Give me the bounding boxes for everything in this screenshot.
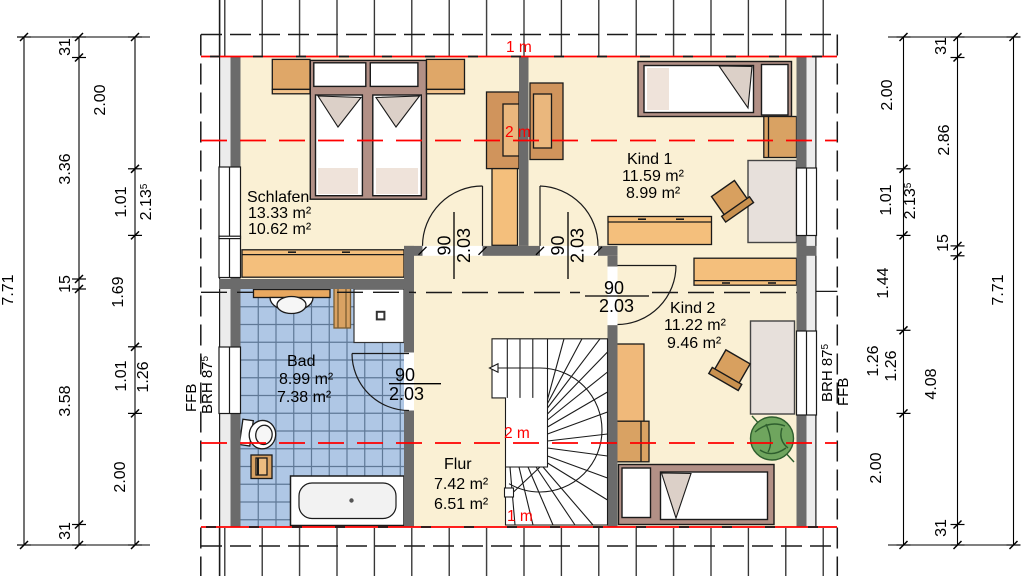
svg-text:90: 90 [435,235,455,255]
svg-text:11.59 m²: 11.59 m² [622,168,685,185]
svg-text:11.22 m²: 11.22 m² [664,317,727,334]
svg-text:7.38 m²: 7.38 m² [277,389,332,406]
svg-text:90: 90 [604,278,624,298]
svg-text:7.71: 7.71 [0,274,17,305]
svg-text:10.62 m²: 10.62 m² [248,221,312,238]
svg-text:31: 31 [933,37,950,55]
svg-text:31: 31 [933,519,950,537]
svg-text:FFB: FFB [835,378,852,406]
svg-text:1.01: 1.01 [113,360,130,391]
svg-text:1.01: 1.01 [113,186,130,217]
svg-text:2.00: 2.00 [868,452,885,483]
svg-text:1.26: 1.26 [865,345,882,376]
svg-text:2.03: 2.03 [389,384,424,404]
svg-text:1.69: 1.69 [110,276,127,307]
svg-text:1.26: 1.26 [883,350,900,381]
svg-text:90: 90 [548,235,568,255]
svg-text:15: 15 [935,234,952,252]
svg-text:BRH 875: BRH 875 [199,355,216,414]
svg-text:2.00: 2.00 [92,84,109,115]
svg-text:1 m: 1 m [506,39,532,56]
svg-text:90: 90 [395,365,415,385]
svg-text:2.03: 2.03 [599,296,634,316]
svg-text:8.99 m²: 8.99 m² [626,185,681,202]
svg-text:2.03: 2.03 [568,228,588,263]
svg-text:FFB: FFB [183,384,200,412]
svg-text:2.86: 2.86 [936,124,953,155]
svg-text:31: 31 [57,38,74,56]
svg-text:7.42 m²: 7.42 m² [434,476,489,493]
svg-text:Schlafen: Schlafen [247,189,309,206]
svg-text:2 m: 2 m [505,124,531,141]
svg-text:Bad: Bad [287,353,315,370]
svg-text:Flur: Flur [444,456,472,473]
svg-text:2.00: 2.00 [112,461,129,492]
svg-text:2.03: 2.03 [454,228,474,263]
svg-text:1.44: 1.44 [875,267,892,298]
svg-text:13.33 m²: 13.33 m² [248,205,312,222]
svg-text:BRH 875: BRH 875 [819,343,836,402]
svg-text:3.36: 3.36 [57,153,74,184]
svg-text:7.71: 7.71 [990,274,1007,305]
svg-text:1 m: 1 m [507,508,533,525]
svg-text:4.08: 4.08 [923,368,940,399]
svg-text:15: 15 [57,275,74,293]
svg-text:31: 31 [57,522,74,540]
svg-text:Kind 2: Kind 2 [670,300,715,317]
svg-text:Kind 1: Kind 1 [627,151,672,168]
svg-text:3.58: 3.58 [57,385,74,416]
svg-text:9.46 m²: 9.46 m² [667,335,722,352]
svg-text:2 m: 2 m [504,425,530,442]
svg-text:8.99 m²: 8.99 m² [279,371,334,388]
svg-text:2.00: 2.00 [879,79,896,110]
svg-text:1.01: 1.01 [878,184,895,215]
svg-text:6.51 m²: 6.51 m² [434,496,489,513]
svg-text:1.26: 1.26 [135,361,152,392]
